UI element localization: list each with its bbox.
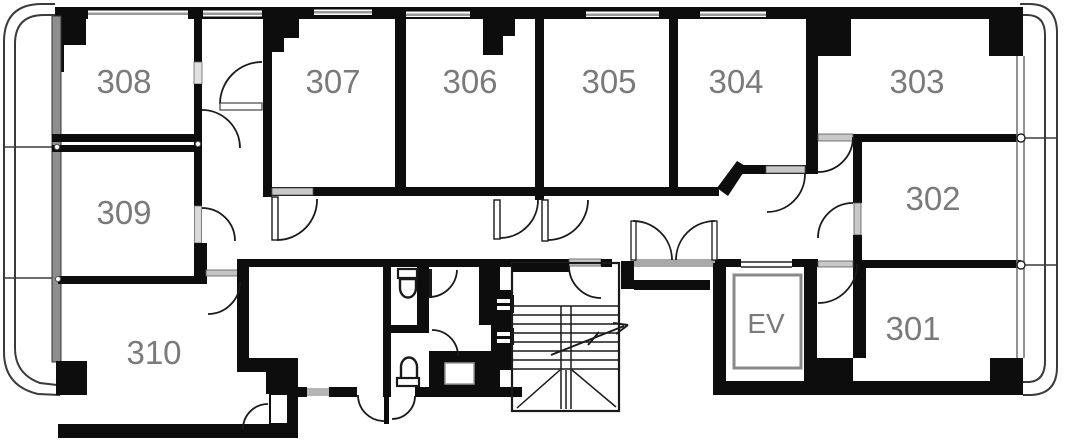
svg-text:305: 305 bbox=[581, 63, 636, 100]
svg-text:EV: EV bbox=[747, 308, 785, 339]
svg-text:303: 303 bbox=[889, 63, 944, 100]
svg-text:304: 304 bbox=[708, 63, 763, 100]
svg-text:310: 310 bbox=[126, 334, 181, 371]
svg-text:308: 308 bbox=[96, 63, 151, 100]
svg-text:301: 301 bbox=[885, 310, 940, 347]
svg-text:306: 306 bbox=[442, 63, 497, 100]
svg-text:309: 309 bbox=[96, 194, 151, 231]
svg-text:302: 302 bbox=[905, 180, 960, 217]
svg-text:307: 307 bbox=[305, 63, 360, 100]
